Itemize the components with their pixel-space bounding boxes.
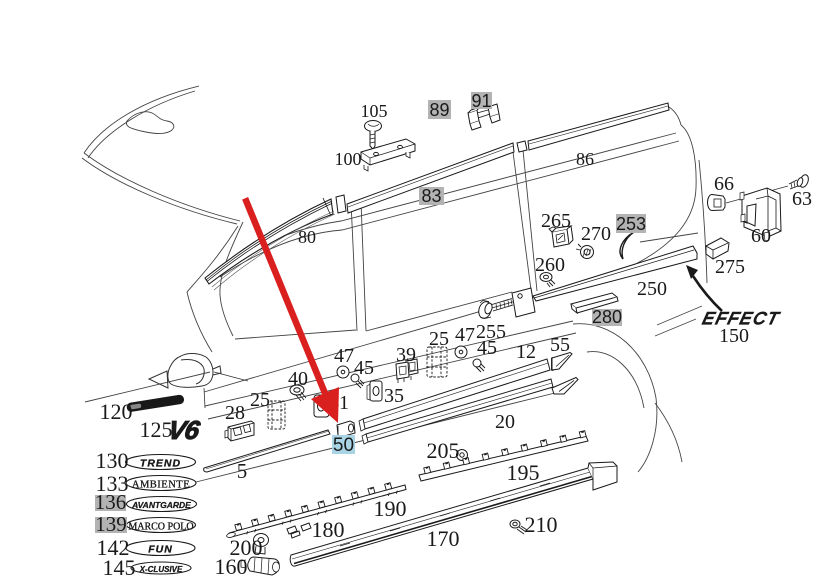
svg-text:63: 63	[792, 188, 812, 210]
svg-text:FUN: FUN	[148, 544, 173, 556]
svg-text:47: 47	[455, 324, 475, 346]
svg-text:47: 47	[334, 345, 354, 367]
svg-text:50: 50	[333, 435, 354, 456]
svg-text:12: 12	[516, 341, 536, 363]
svg-text:89: 89	[429, 100, 449, 120]
svg-text:5: 5	[237, 459, 248, 483]
svg-text:25: 25	[250, 389, 270, 411]
svg-text:120: 120	[100, 399, 133, 424]
svg-text:145: 145	[103, 555, 136, 580]
svg-text:39: 39	[396, 344, 416, 366]
svg-text:40: 40	[288, 368, 308, 390]
svg-text:83: 83	[421, 186, 441, 206]
svg-text:125: 125	[140, 417, 173, 442]
svg-text:250: 250	[637, 278, 667, 300]
svg-text:80: 80	[298, 227, 316, 247]
svg-text:130: 130	[96, 448, 129, 473]
svg-text:60: 60	[751, 225, 771, 247]
svg-text:139: 139	[95, 512, 127, 536]
svg-text:160: 160	[215, 554, 248, 579]
svg-text:253: 253	[616, 214, 646, 234]
svg-text:20: 20	[495, 411, 515, 433]
svg-text:X-CLUSIVE: X-CLUSIVE	[139, 565, 183, 574]
svg-text:190: 190	[374, 496, 407, 521]
svg-text:205: 205	[427, 438, 460, 463]
svg-text:TREND: TREND	[140, 458, 181, 470]
svg-text:45: 45	[477, 337, 497, 359]
svg-text:86: 86	[576, 149, 594, 169]
svg-text:195: 195	[507, 460, 540, 485]
svg-text:133: 133	[96, 471, 129, 496]
svg-text:210: 210	[525, 512, 558, 537]
svg-text:270: 270	[581, 223, 611, 245]
svg-text:AVANTGARDE: AVANTGARDE	[131, 500, 191, 510]
svg-text:105: 105	[361, 101, 388, 121]
svg-text:55: 55	[550, 334, 570, 356]
svg-text:170: 170	[427, 526, 460, 551]
svg-text:AMBIENTE: AMBIENTE	[132, 480, 190, 491]
svg-text:265: 265	[541, 210, 571, 232]
svg-text:150: 150	[719, 325, 749, 347]
svg-text:45: 45	[354, 357, 374, 379]
svg-text:280: 280	[592, 307, 622, 327]
svg-text:91: 91	[471, 91, 491, 111]
svg-text:35: 35	[384, 385, 404, 407]
svg-text:275: 275	[715, 256, 745, 278]
svg-text:180: 180	[312, 517, 345, 542]
svg-text:260: 260	[535, 254, 565, 276]
svg-text:100: 100	[335, 149, 362, 169]
svg-text:66: 66	[714, 173, 734, 195]
svg-text:28: 28	[225, 402, 245, 424]
svg-text:25: 25	[429, 328, 449, 350]
svg-text:MARCO POLO: MARCO POLO	[128, 522, 193, 533]
